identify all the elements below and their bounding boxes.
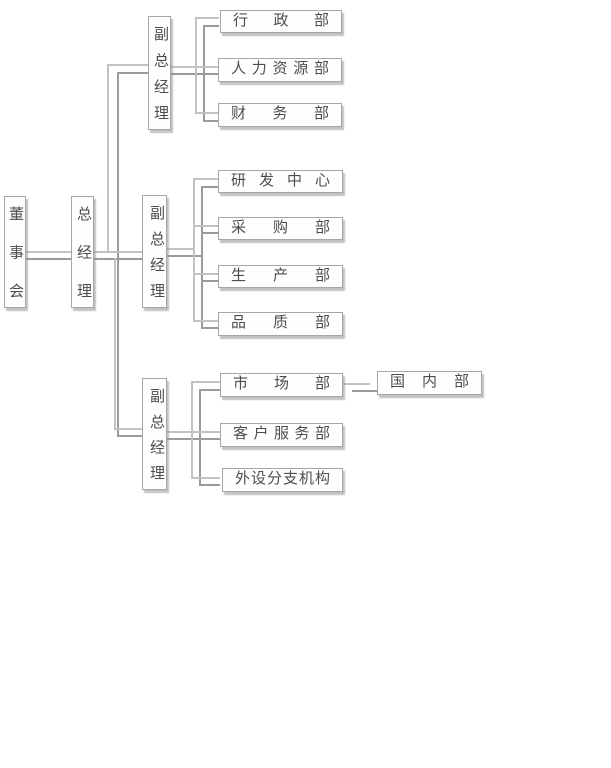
- connector-segment: [195, 66, 219, 68]
- node-deputy-general-manager-2: 副总经理: [142, 195, 167, 308]
- connector-segment: [195, 17, 219, 19]
- connector-segment: [343, 383, 370, 385]
- connector-segment: [203, 25, 219, 27]
- node-dept-marketing: 市场部: [220, 373, 343, 397]
- connector-segment: [171, 66, 195, 68]
- connector-segment: [26, 258, 71, 260]
- node-board-of-directors: 董事会: [4, 196, 26, 308]
- connector-segment: [167, 255, 201, 257]
- connector-segment: [117, 72, 119, 436]
- node-dept-quality: 品质部: [218, 312, 343, 336]
- node-deputy-general-manager-3: 副总经理: [142, 378, 167, 490]
- node-dept-human-resources: 人力资源部: [218, 58, 342, 82]
- connector-segment: [193, 225, 218, 227]
- connector-segment: [195, 112, 219, 114]
- connector-segment: [117, 435, 142, 437]
- node-dept-rd-center: 研发中心: [218, 170, 343, 193]
- connector-segment: [191, 381, 220, 383]
- connector-segment: [201, 186, 218, 188]
- connector-segment: [193, 178, 195, 320]
- connector-segment: [199, 389, 201, 484]
- connector-segment: [201, 186, 203, 328]
- node-dept-finance: 财务部: [218, 103, 342, 127]
- connector-segment: [114, 428, 142, 430]
- connector-segment: [193, 320, 218, 322]
- node-dept-purchasing: 采购部: [218, 217, 343, 240]
- node-deputy-general-manager-1: 副总经理: [148, 16, 171, 130]
- connector-segment: [107, 64, 148, 66]
- connector-segment: [203, 73, 219, 75]
- node-dept-production: 生产部: [218, 265, 343, 288]
- connector-segment: [191, 431, 220, 433]
- connector-segment: [107, 251, 142, 253]
- connector-segment: [199, 484, 220, 486]
- connector-segment: [352, 390, 377, 392]
- node-dept-customer-service: 客户服务部: [220, 423, 343, 447]
- connector-segment: [117, 72, 148, 74]
- node-general-manager: 总经理: [71, 196, 94, 308]
- connector-segment: [167, 431, 191, 433]
- connector-segment: [191, 477, 220, 479]
- connector-segment: [107, 64, 109, 253]
- connector-segment: [171, 73, 203, 75]
- connector-segment: [167, 248, 193, 250]
- connector-segment: [193, 178, 218, 180]
- connector-segment: [201, 280, 218, 282]
- connector-segment: [117, 258, 142, 260]
- connector-segment: [203, 120, 219, 122]
- node-dept-branch-offices: 外设分支机构: [222, 468, 343, 492]
- connector-segment: [114, 258, 116, 430]
- org-chart-canvas: 董事会 总经理 副总经理 副总经理 副总经理 行政部 人力资源部 财务部 研发中…: [0, 0, 611, 768]
- connector-segment: [26, 251, 71, 253]
- connector-segment: [94, 251, 108, 253]
- connector-segment: [195, 17, 197, 113]
- node-dept-domestic: 国内部: [377, 371, 482, 395]
- connector-segment: [191, 381, 193, 477]
- connector-segment: [201, 327, 218, 329]
- connector-segment: [167, 438, 199, 440]
- connector-segment: [193, 273, 218, 275]
- node-dept-administration: 行政部: [220, 10, 342, 33]
- connector-segment: [199, 438, 220, 440]
- connector-segment: [201, 232, 218, 234]
- connector-segment: [199, 389, 220, 391]
